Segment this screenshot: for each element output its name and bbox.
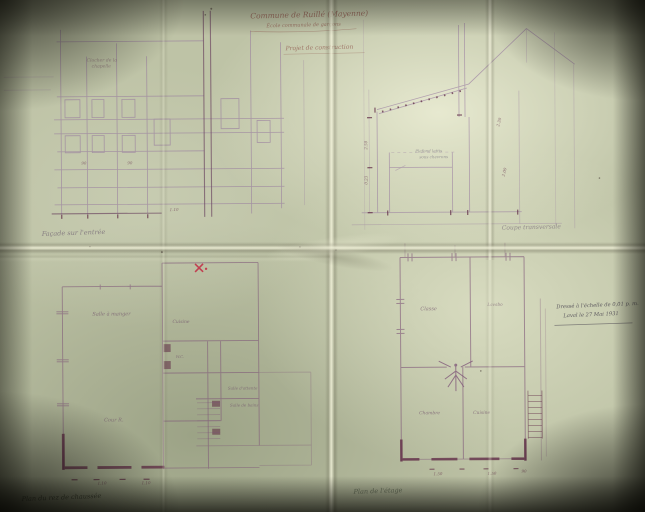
photo-frame: Commune de Ruillé (Mayenne) École commun…: [0, 0, 645, 512]
room-cuisine-floor: Cuisine: [473, 410, 490, 416]
section-caption: Coupe transversale: [502, 223, 562, 231]
ground-plan-caption: Plan du rez de chaussée: [20, 492, 101, 503]
elevation-note-line2: chapelle: [92, 63, 112, 69]
annotation-block: Dressé à l'échelle de 0,01 p. m. Laval l…: [554, 300, 639, 325]
section-dim-right-1: 2.30: [495, 117, 502, 128]
elevation-note-line1: Clocher de la: [87, 57, 118, 63]
ground-plan-walls-thin: [56, 262, 311, 470]
section-dim-right-2: 2.00: [500, 167, 507, 178]
subtitle-underline: [284, 53, 365, 55]
room-wc: W.C.: [176, 354, 184, 359]
ground-dim-1: 1.10: [98, 481, 107, 486]
floor-dim-3: 90: [521, 469, 527, 474]
elevation-wall-ticks: [62, 214, 148, 219]
floor-plan-walls-thin: [396, 242, 547, 461]
section-note-line1: Plafond lattis: [414, 148, 442, 153]
subtitle: Projet de construction: [284, 44, 353, 53]
room-classe: Classe: [420, 306, 437, 312]
annotation-line2: Laval le 27 Mai 1931: [562, 311, 619, 319]
title-block: Commune de Ruillé (Mayenne) École commun…: [250, 9, 368, 55]
room-bains: Salle de bains: [230, 402, 258, 407]
ground-plan-walls-thick: [63, 433, 164, 470]
section-drawing: [350, 18, 575, 230]
room-attente: Salle d'attente: [228, 385, 258, 390]
floor-dim-2: 1.50: [488, 471, 497, 476]
room-cour: Cour R.: [104, 417, 124, 423]
floor-plan-stair-ladder: [528, 390, 542, 438]
floor-plan-dim-ticks: [429, 469, 518, 470]
elevation-dim-1: 90: [81, 161, 87, 166]
elevation-drawing: [3, 28, 304, 215]
room-salle-a-manger: Salle à manger: [92, 310, 131, 317]
elevation-dim-3: 1.10: [170, 207, 179, 212]
section-texts: Plafond lattis sous chevrons 2.50 0.23 2…: [363, 116, 561, 232]
annotation-underline: [554, 323, 632, 326]
ground-plan-texts: Salle à manger Cuisine Cour R. W.C. Sall…: [19, 309, 259, 503]
floor-plan-texts: Classe Lavabo Chambre Cuisine 1.50 1.50 …: [351, 302, 527, 496]
annotation-line1: Dressé à l'échelle de 0,01 p. m.: [555, 300, 639, 311]
floor-dim-1: 1.50: [434, 471, 443, 476]
room-lavabo: Lavabo: [486, 302, 503, 307]
room-chambre: Chambre: [419, 410, 440, 416]
drawing-layer: Commune de Ruillé (Mayenne) École commun…: [0, 0, 645, 512]
section-dim-left-2: 0.23: [363, 175, 368, 184]
title-line1: Commune de Ruillé (Mayenne): [250, 9, 368, 21]
drawing-svg: Commune de Ruillé (Mayenne) École commun…: [0, 0, 645, 512]
ground-plan-dim-ticks: [72, 479, 150, 480]
ground-plan-red-mark: [195, 264, 207, 272]
ground-dim-2: 1.10: [142, 480, 151, 485]
section-dim-left-1: 2.50: [363, 140, 368, 150]
floor-plan-plant-sketch: [439, 361, 473, 391]
elevation-caption: Façade sur l'entrée: [41, 228, 106, 238]
section-note-line2: sous chevrons: [419, 154, 448, 159]
title-line2: École communale de garçons: [265, 20, 341, 30]
elevation-dim-2: 90: [127, 160, 133, 165]
room-cuisine-ground: Cuisine: [172, 319, 189, 325]
floor-plan-caption: Plan de l'étage: [352, 486, 402, 496]
